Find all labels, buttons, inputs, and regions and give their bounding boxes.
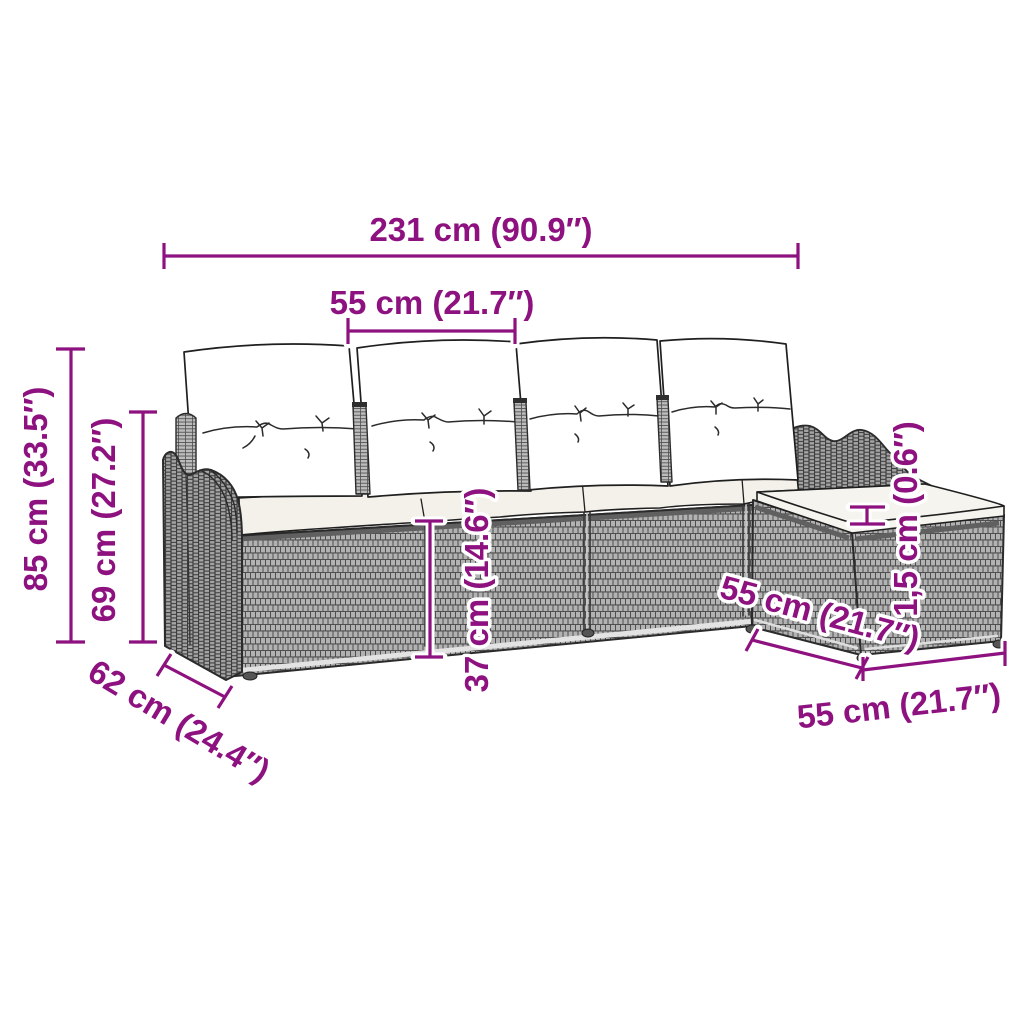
svg-text:69 cm (27.2″): 69 cm (27.2″) <box>85 418 122 623</box>
svg-text:55 cm (21.7″): 55 cm (21.7″) <box>330 284 535 321</box>
svg-text:1,5 cm (0.6″): 1,5 cm (0.6″) <box>887 421 924 617</box>
svg-text:231 cm (90.9″): 231 cm (90.9″) <box>369 211 592 248</box>
svg-text:37 cm (14.6″): 37 cm (14.6″) <box>458 488 495 693</box>
svg-text:85 cm (33.5″): 85 cm (33.5″) <box>17 387 54 592</box>
